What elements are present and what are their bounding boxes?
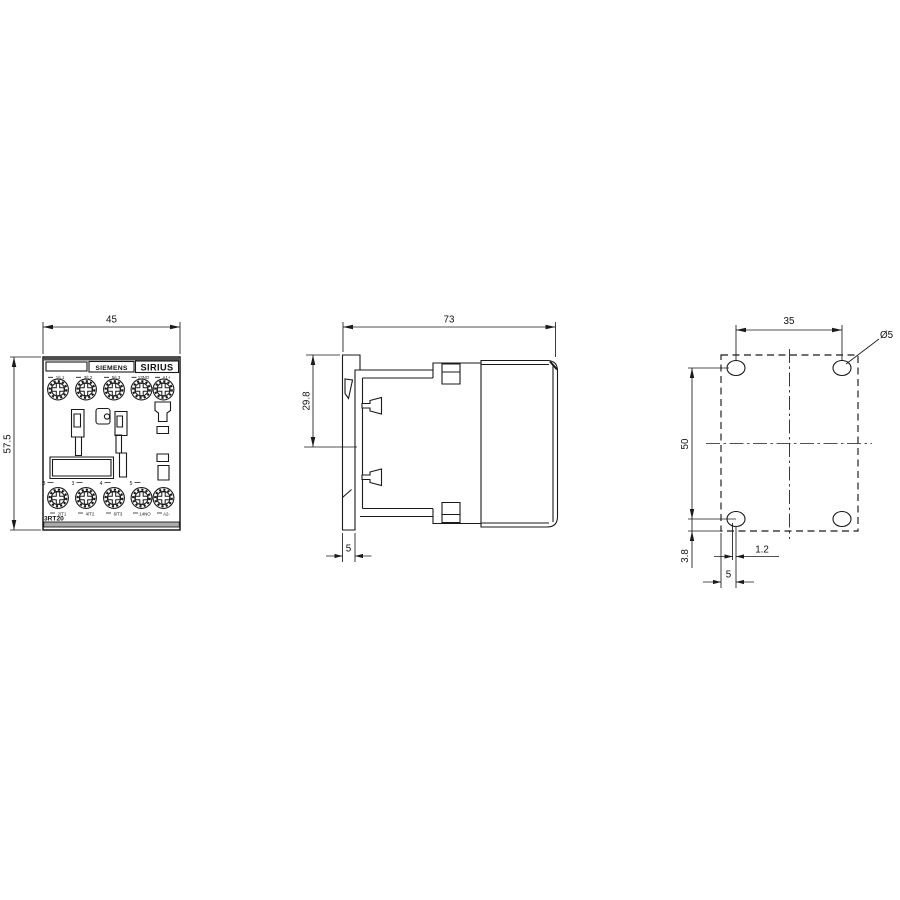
side-body-outline — [360, 363, 481, 524]
dim-left-offset-5: 5 — [703, 533, 754, 588]
dim-bottom-offset-3-8: 3.8 — [680, 519, 721, 568]
series-label: SIRIUS — [140, 363, 173, 373]
terminal-screw — [131, 379, 152, 400]
terminal-block-top — [442, 364, 460, 384]
molded-number: 8 — [43, 481, 46, 487]
model-label: 3RT20 — [44, 516, 64, 523]
contactor-dimension-drawing: 45 57.5 SIEMENS SIRIUS 1/L1 3/L2 5/L3 13… — [0, 0, 900, 900]
terminal-screw — [153, 488, 174, 509]
dim-bottom-offset-label: 3.8 — [680, 549, 691, 563]
release-tab — [362, 469, 382, 486]
terminal-screw — [48, 488, 69, 509]
brand-label: SIEMENS — [95, 365, 128, 372]
terminal-label: A2- — [163, 512, 170, 517]
terminal-screw — [131, 488, 152, 509]
release-tab — [362, 398, 382, 415]
dim-rail-offset-29-8: 29.8 — [302, 355, 358, 447]
dim-height-label: 57.5 — [3, 434, 14, 454]
side-view: 73 29.8 5 — [302, 315, 558, 563]
terminal-screw — [153, 379, 174, 400]
dim-height-57-5: 57.5 — [3, 357, 42, 530]
dim-hole-spacing-v-label: 50 — [680, 438, 691, 449]
mounting-hole — [833, 512, 851, 527]
dim-hole-spacing-h-label: 35 — [784, 316, 795, 327]
dim-slot-offset-label: 1.2 — [755, 545, 769, 556]
molded-number: 5 — [130, 481, 133, 487]
drilling-plan: 35 Ø5 50 3.8 1.2 — [680, 316, 894, 588]
terminal-label: 14NO — [139, 512, 151, 517]
molded-number: 3 — [72, 481, 75, 487]
bottom-latch-band — [44, 522, 180, 527]
front-cap — [481, 361, 558, 528]
molded-number: 4 — [100, 481, 103, 487]
dim-slot-offset-1-2: 1.2 — [714, 523, 779, 588]
blank-label-plate — [46, 362, 87, 371]
terminal-screw — [104, 488, 125, 509]
hole-diameter-label: Ø5 — [880, 330, 894, 341]
din-clip-spring — [345, 379, 353, 399]
terminal-screw — [104, 379, 125, 400]
terminal-block-bottom — [442, 503, 460, 523]
front-view: 45 57.5 SIEMENS SIRIUS 1/L1 3/L2 5/L3 13… — [3, 315, 181, 531]
terminal-label: 4/T2 — [86, 512, 95, 517]
din-clip-chamfer — [343, 490, 352, 498]
dimension-drawing-page: 45 57.5 SIEMENS SIRIUS 1/L1 3/L2 5/L3 13… — [0, 0, 900, 900]
dim-width-45: 45 — [43, 315, 180, 355]
dim-depth-label: 73 — [444, 315, 455, 326]
hole-diameter-callout: Ø5 — [846, 330, 894, 364]
terminal-screw — [48, 379, 69, 400]
dim-rail-offset-label: 29.8 — [302, 391, 313, 411]
terminal-screw — [76, 488, 97, 509]
mounting-hole — [727, 361, 745, 376]
terminal-label: 6/T3 — [114, 512, 123, 517]
dim-rail-thickness-label: 5 — [346, 544, 352, 555]
terminal-screw — [76, 379, 97, 400]
dim-left-offset-label: 5 — [726, 570, 732, 581]
dim-depth-73: 73 — [343, 315, 556, 358]
top-trim-band — [44, 358, 179, 361]
dim-rail-thickness-5: 5 — [326, 533, 372, 562]
dim-width-label: 45 — [106, 315, 117, 326]
